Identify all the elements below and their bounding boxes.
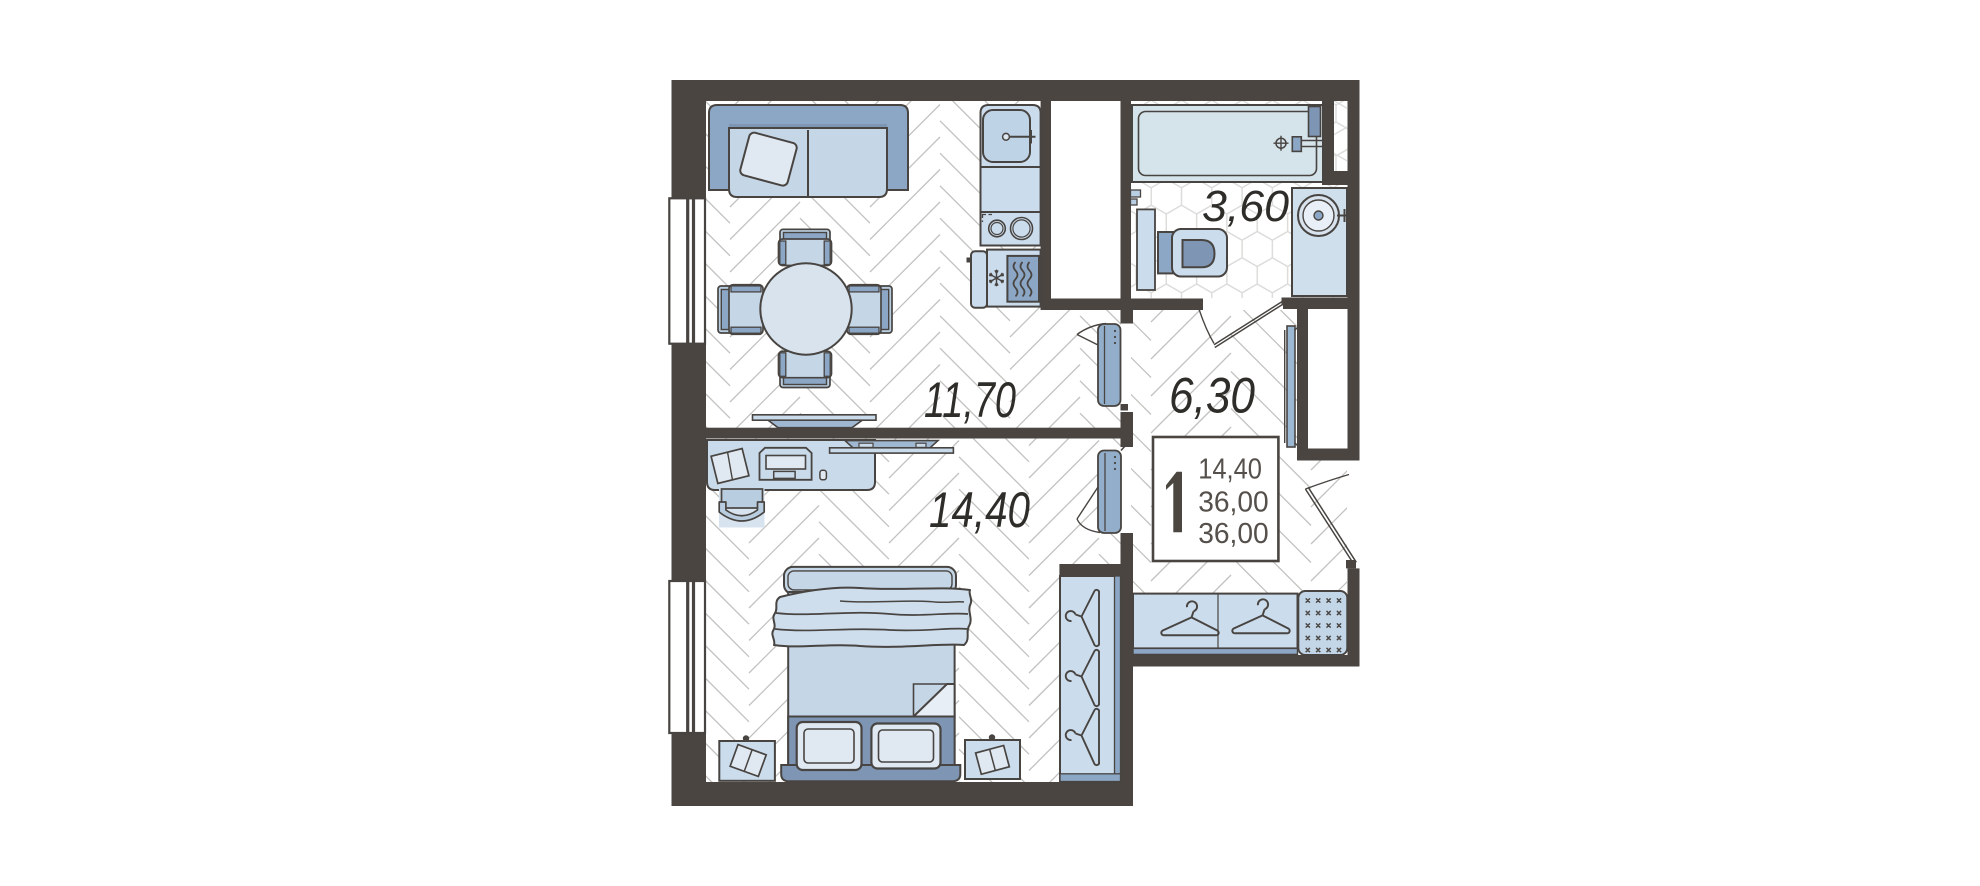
svg-text:14,40: 14,40 [1198,454,1262,486]
svg-text:6,30: 6,30 [1169,368,1255,424]
svg-text:11,70: 11,70 [924,372,1016,428]
svg-text:3,60: 3,60 [1202,182,1290,231]
svg-text:14,40: 14,40 [929,482,1030,538]
svg-text:36,00: 36,00 [1198,486,1269,518]
svg-text:36,00: 36,00 [1198,518,1269,550]
